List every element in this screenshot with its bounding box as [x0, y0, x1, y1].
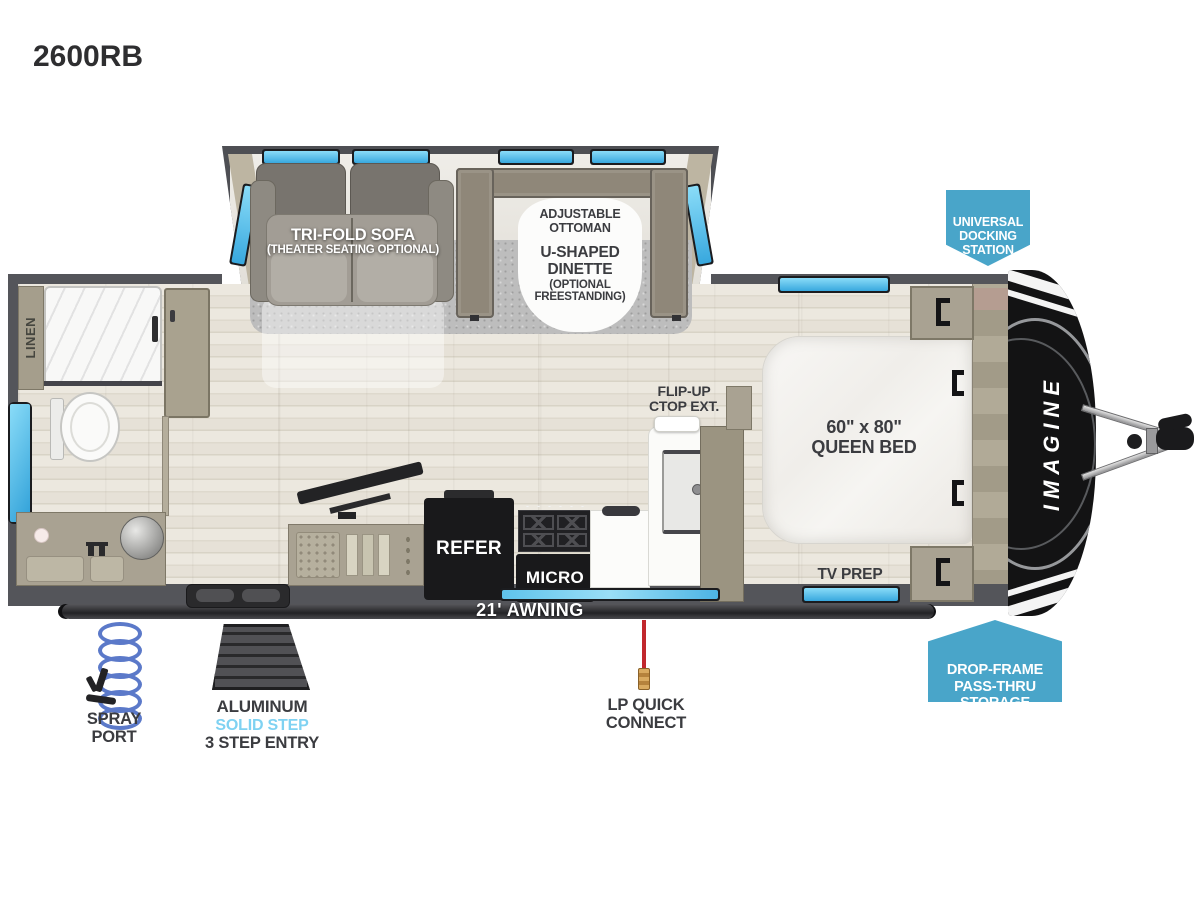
- shower: [44, 286, 162, 386]
- burner-grate-icon: [557, 533, 588, 548]
- spray-nozzle-icon: [84, 668, 124, 708]
- step-entry-label: 3 STEP ENTRY: [200, 734, 324, 752]
- burner-grate-icon: [523, 533, 554, 548]
- dinette-bench-right: [650, 168, 688, 318]
- tv-bracket-icon-2: [952, 370, 964, 396]
- vanity-drawer-1: [26, 556, 84, 582]
- docking-station-callout: UNIVERSAL DOCKING STATION: [946, 190, 1030, 266]
- kitchen-counter: [590, 510, 650, 588]
- brand-wordmark: IMAGINE: [1008, 270, 1096, 616]
- floor-light-patch: [262, 296, 444, 388]
- docking-station-label: UNIVERSAL DOCKING STATION: [946, 208, 1030, 257]
- bedroom-partition-wall: [700, 426, 744, 602]
- refrigerator-label: REFER: [436, 539, 502, 560]
- wall-top-left: [8, 274, 222, 284]
- cooktop-knobs: [522, 504, 588, 509]
- cabinet-slat-3: [378, 534, 390, 576]
- tv-mount-base: [338, 512, 356, 519]
- dinette-foot-right: [672, 315, 681, 321]
- dinette-label: U-SHAPED DINETTE: [540, 244, 619, 278]
- flip-up-label: FLIP-UP CTOP EXT.: [640, 384, 728, 415]
- pass-thru-storage-label: DROP-FRAME PASS-THRU STORAGE: [928, 638, 1062, 712]
- burner-grate-icon: [557, 515, 588, 530]
- entry-steps: [212, 624, 310, 690]
- bathroom-door: [164, 288, 210, 418]
- floorplan-page: 2600RB TRI-FOLD SOFA (THEATER SEATING OP…: [0, 0, 1200, 900]
- bathroom-partition-wall: [162, 416, 169, 516]
- entry-mat-pad-1: [196, 589, 234, 602]
- slideout-window-4: [590, 149, 666, 165]
- entry-mat-pad-2: [242, 589, 280, 602]
- vanity-faucet-leg-2: [99, 544, 105, 556]
- step-material-label: ALUMINUM: [200, 698, 324, 717]
- vanity-sink-bowl: [120, 516, 164, 560]
- linen-cabinet: LINEN: [18, 286, 44, 390]
- vanity-drawer-2: [90, 556, 124, 582]
- vanity-faucet-leg-1: [88, 544, 94, 556]
- slideout-window-3: [498, 149, 574, 165]
- lp-line-icon: [642, 620, 646, 668]
- flip-up-counter-extension: [654, 416, 700, 432]
- cabinet-slat-1: [346, 534, 358, 576]
- spray-port-label: SPRAY PORT: [76, 710, 152, 746]
- bedroom-window-bottom: [802, 586, 900, 603]
- cabinet-slat-2: [362, 534, 374, 576]
- shower-door-track: [44, 381, 162, 386]
- pass-thru-storage-callout: DROP-FRAME PASS-THRU STORAGE: [928, 620, 1062, 702]
- pass-thru-top-tile: [974, 288, 1012, 310]
- lp-quick-connect-label: LP QUICK CONNECT: [594, 696, 698, 732]
- dinette-foot-left: [470, 315, 479, 321]
- model-title: 2600RB: [33, 40, 143, 74]
- step-brand-label: SOLID STEP: [200, 717, 324, 735]
- sofa-sublabel: (THEATER SEATING OPTIONAL): [255, 244, 451, 257]
- refrigerator: REFER: [424, 498, 514, 600]
- front-cap: IMAGINE: [1008, 270, 1096, 616]
- shower-fixture-icon: [152, 316, 158, 342]
- sofa-label: TRI-FOLD SOFA: [255, 226, 451, 244]
- partition-pillar: [726, 386, 752, 430]
- awning-label: 21' AWNING: [430, 601, 630, 621]
- dinette-sublabel: (OPTIONAL FREESTANDING): [534, 279, 625, 304]
- ottoman-label: ADJUSTABLE OTTOMAN: [539, 208, 620, 236]
- vanity-soap-dish: [34, 528, 49, 543]
- fireplace-panel: [296, 532, 340, 578]
- tv-bracket-icon-4: [936, 558, 950, 586]
- bed-label: 60" x 80" QUEEN BED: [790, 418, 938, 458]
- counter-utensil-slot: [602, 506, 640, 516]
- cabinet-knob-column: [404, 534, 412, 578]
- burner-grate-icon: [523, 515, 554, 530]
- sofa-label-group: TRI-FOLD SOFA (THEATER SEATING OPTIONAL): [255, 226, 451, 257]
- toilet-seat-ring: [70, 402, 110, 452]
- sofa-seat-cushion-left: [271, 252, 347, 302]
- bathroom-window: [8, 402, 32, 524]
- bedroom-window-top: [778, 276, 890, 293]
- linen-label: LINEN: [24, 317, 38, 359]
- tv-bracket-icon-1: [936, 298, 950, 326]
- tv-bracket-icon-3: [952, 480, 964, 506]
- dinette-callout-bubble: ADJUSTABLE OTTOMAN U-SHAPED DINETTE (OPT…: [518, 198, 642, 332]
- tv-prep-label: TV PREP: [800, 566, 900, 583]
- sofa-seat-cushion-right: [357, 252, 433, 302]
- bathroom-door-handle: [170, 310, 175, 322]
- microwave-label: MICRO: [526, 569, 584, 588]
- lp-connector-icon: [638, 668, 650, 690]
- cooktop: [518, 510, 592, 552]
- dinette-bench-left: [456, 168, 494, 318]
- brand-label: IMAGINE: [1040, 375, 1064, 511]
- hitch-jack-knob-icon: [1127, 434, 1142, 449]
- step-label-group: ALUMINUM SOLID STEP 3 STEP ENTRY: [200, 698, 324, 752]
